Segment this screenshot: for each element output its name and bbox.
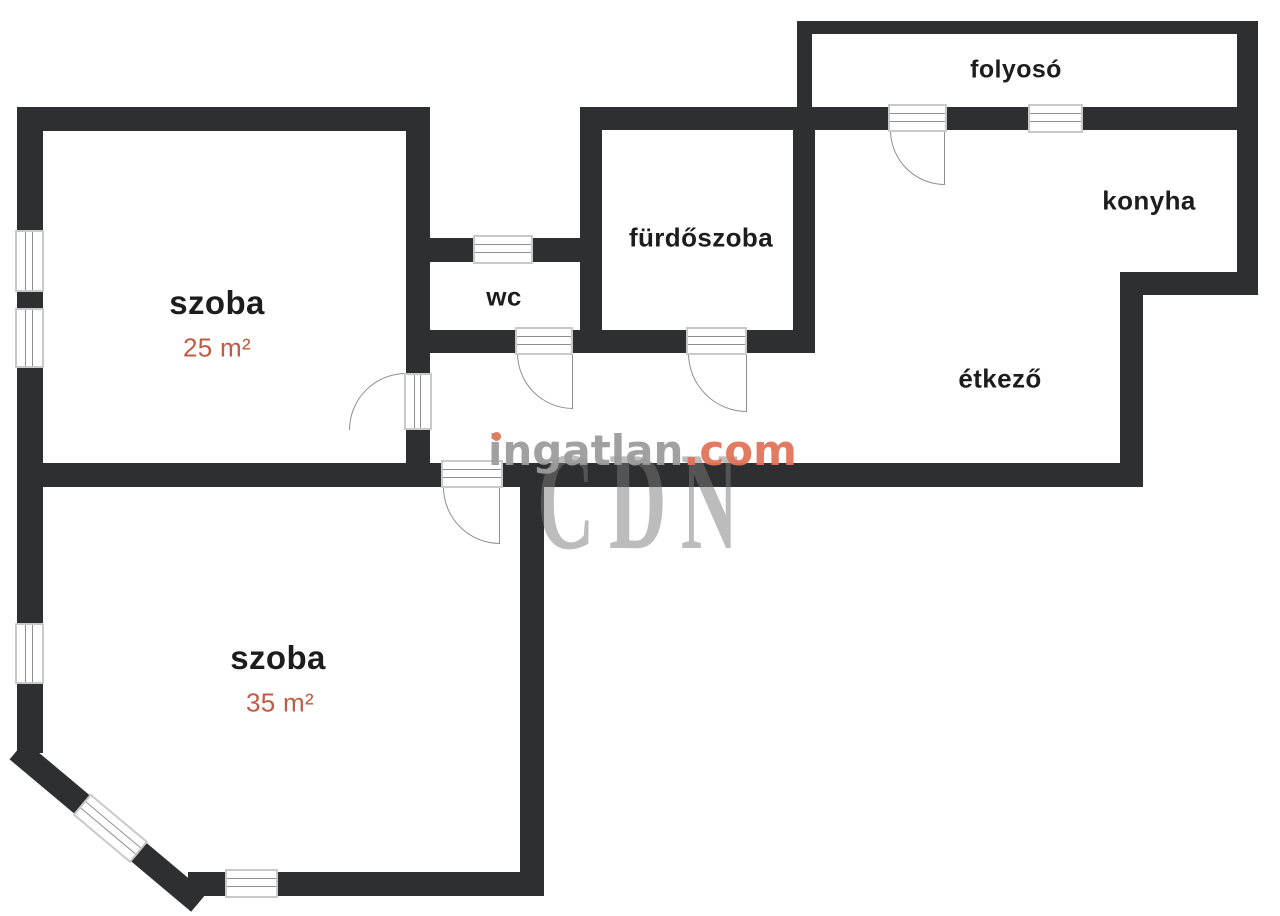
door-symbol-folyoso-door <box>888 104 947 132</box>
wall-wc-top-left <box>406 238 473 262</box>
wall-wet-bottom-left <box>406 330 517 353</box>
wall-szoba35-left-lower <box>17 684 43 753</box>
wall-szoba25-top <box>17 107 430 131</box>
room-label-folyoso: folyosó <box>970 56 1062 85</box>
wall-diagonal-container <box>10 741 207 912</box>
window-symbol-szoba25-window-lower <box>15 308 44 368</box>
wall-szoba35-left-upper <box>17 487 43 623</box>
window-symbol-szoba35-window-bottom <box>225 869 278 898</box>
door-swing-wc-door <box>517 353 573 409</box>
window-symbol-szoba35-diagonal <box>73 793 148 863</box>
room-label-wc: wc <box>486 282 521 313</box>
watermark-logo: ingatlan.com <box>488 430 797 472</box>
door-symbol-wc-door <box>515 327 573 355</box>
window-symbol-konyha-window <box>1028 104 1083 133</box>
door-swing-folyoso-door <box>890 130 945 185</box>
door-swing-furdoszoba-door <box>688 353 747 412</box>
room-label-szoba-25: szoba <box>169 284 265 322</box>
room-area-szoba-25: 25 m² <box>183 333 251 364</box>
wall-right-outer <box>1237 21 1258 295</box>
wall-furdoszoba-right <box>793 107 815 353</box>
floor-plan: szoba 25 m² szoba 35 m² wc fürdőszoba fo… <box>0 0 1280 916</box>
door-symbol-furdoszoba-door <box>686 327 747 355</box>
door-swing-szoba35-door <box>443 487 500 544</box>
window-symbol-szoba35-window-left <box>15 623 44 684</box>
room-label-etkezo: étkező <box>958 364 1041 395</box>
wall-folyoso-top <box>797 21 1258 34</box>
wall-etkezo-right <box>1120 272 1143 487</box>
logo-i-dot-icon <box>492 432 501 441</box>
wall-furdoszoba-left <box>580 107 602 353</box>
wall-szoba25-left-mid <box>17 292 43 308</box>
wall-band-mid <box>947 107 1028 130</box>
room-label-konyha: konyha <box>1102 186 1195 217</box>
wall-band-left <box>580 107 890 130</box>
room-area-szoba-35: 35 m² <box>246 688 314 719</box>
door-symbol-szoba25-door <box>404 373 432 430</box>
door-swing-szoba25-door <box>349 373 406 430</box>
wall-band-right <box>1083 107 1258 130</box>
wall-szoba35-bottom-right <box>278 872 544 896</box>
window-symbol-wc-window <box>473 235 533 264</box>
wall-folyoso-left <box>797 21 812 107</box>
window-symbol-szoba25-window-upper <box>15 230 44 292</box>
wall-main-bottom-left <box>17 463 443 487</box>
wall-szoba25-left-upper <box>17 107 43 230</box>
watermark-brand-text: ingatlan <box>488 426 683 475</box>
room-label-szoba-35: szoba <box>230 639 326 677</box>
wall-diagonal-segment-1 <box>10 741 91 815</box>
watermark-tld-text: .com <box>683 426 796 475</box>
room-label-furdoszoba: fürdőszoba <box>629 223 773 254</box>
